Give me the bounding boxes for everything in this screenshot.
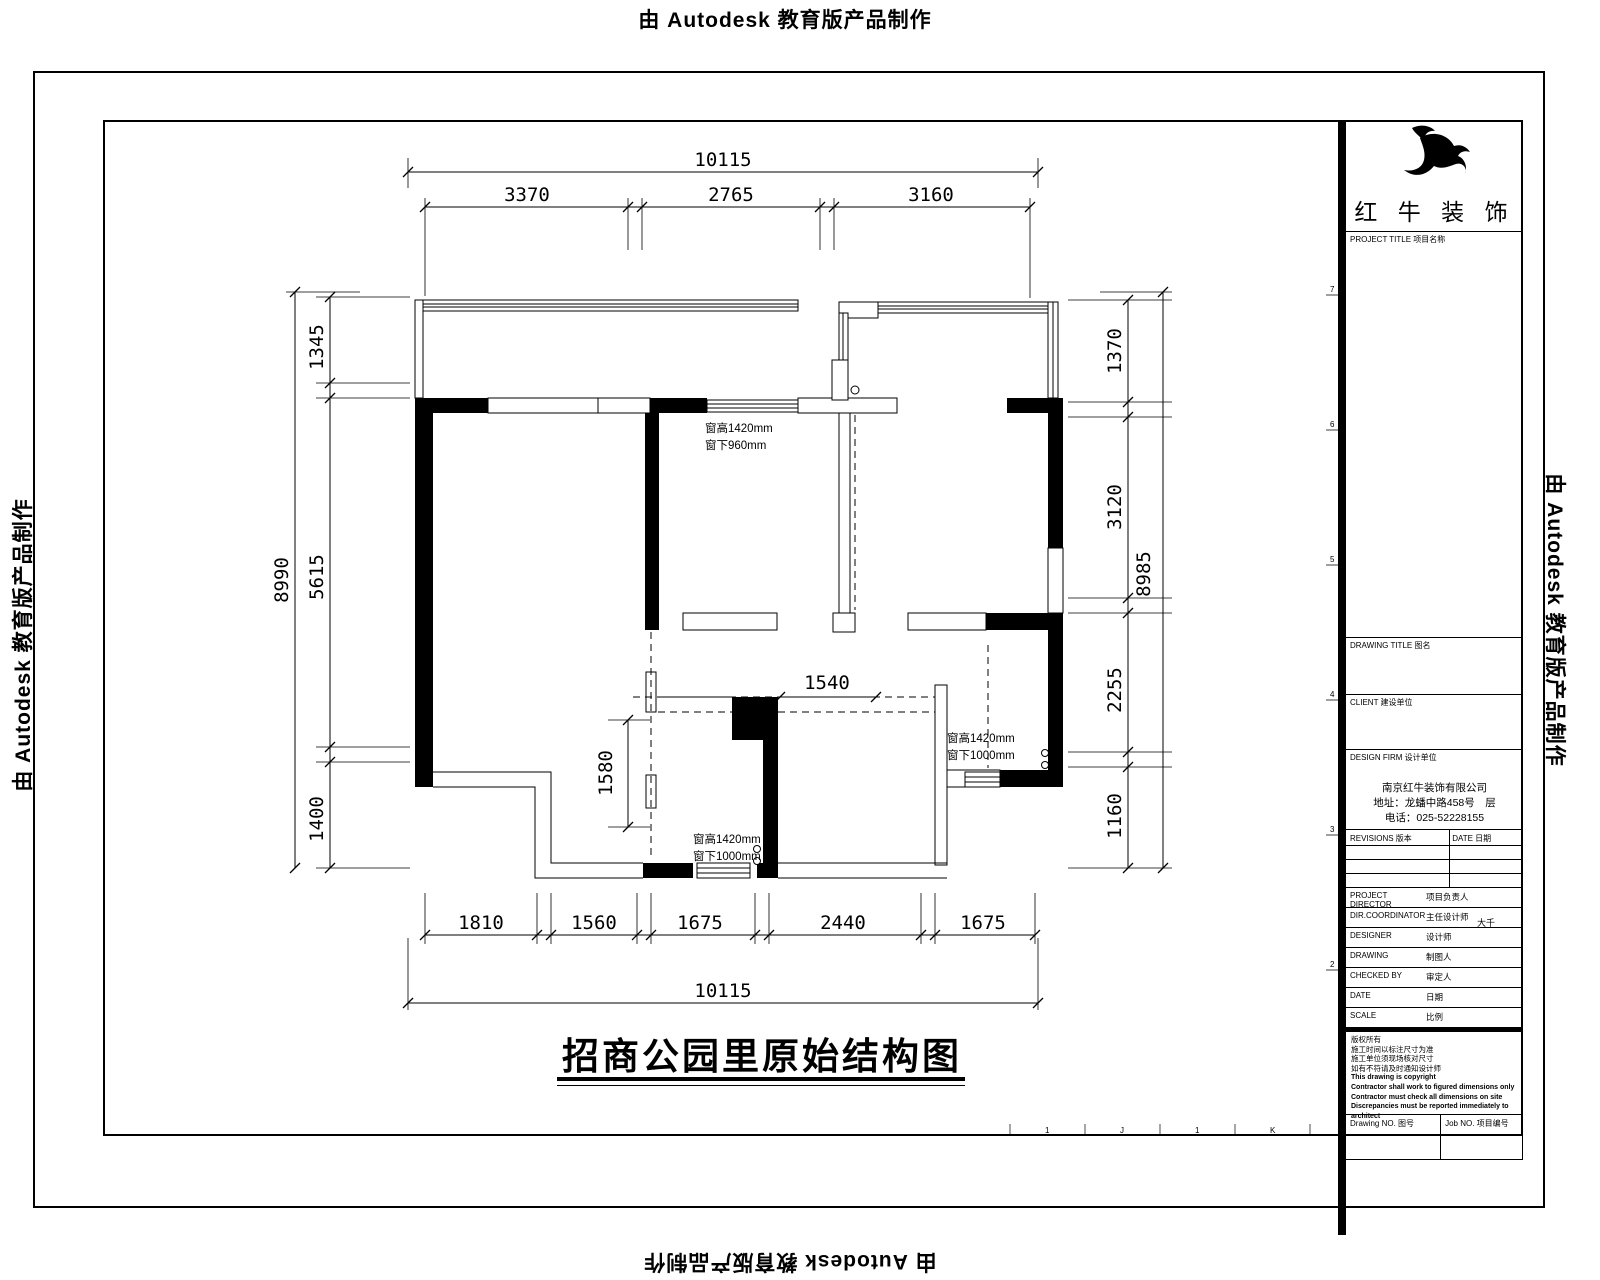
project-title-box: PROJECT TITLE 项目名称 xyxy=(1346,232,1523,638)
svg-text:1: 1 xyxy=(1045,1126,1050,1135)
dim-top-seg-2: 2765 xyxy=(708,184,754,206)
window-note-right-2: 窗下1000mm xyxy=(947,748,1015,762)
window-note-right-1: 窗高1420mm xyxy=(947,731,1015,745)
dim-right-seg-2: 3120 xyxy=(1104,484,1126,530)
title-underline-thick xyxy=(557,1077,965,1081)
window-annotations: 窗高1420mm 窗下960mm 窗高1420mm 窗下1000mm 窗高142… xyxy=(693,421,1015,863)
revision-row xyxy=(1346,874,1523,888)
revisions-header: REVISIONS 版本 DATE 日期 xyxy=(1346,830,1523,846)
dim-right-overall: 8985 xyxy=(1133,551,1155,597)
dim-top-seg-3: 3160 xyxy=(908,184,954,206)
dim-left-overall: 8990 xyxy=(271,557,293,603)
design-firm-box: DESIGN FIRM 设计单位 南京红牛装饰有限公司 地址：龙蟠中路458号 … xyxy=(1346,750,1523,830)
row-dir-coordinator: DIR.COORDINATOR 主任设计师 大千 xyxy=(1346,908,1523,928)
drawing-title-box: DRAWING TITLE 图名 xyxy=(1346,638,1523,695)
client-box: CLIENT 建设单位 xyxy=(1346,695,1523,750)
dim-right-seg-3: 2255 xyxy=(1104,667,1126,713)
window-note-top-2: 窗下960mm xyxy=(705,438,766,452)
company-phone: 电话：025-52228155 xyxy=(1350,811,1519,826)
dim-bottom-seg-2: 1560 xyxy=(571,912,617,934)
svg-text:6: 6 xyxy=(1330,420,1335,429)
row-drawing: DRAWING 制图人 xyxy=(1346,948,1523,968)
svg-text:K: K xyxy=(1270,1126,1276,1135)
column-divider xyxy=(1440,1115,1441,1159)
svg-text:2: 2 xyxy=(1330,960,1335,969)
dim-bottom-seg-4: 2440 xyxy=(820,912,866,934)
svg-text:4: 4 xyxy=(1330,690,1335,699)
dim-interior-width: 1540 xyxy=(804,672,850,694)
dim-top-overall: 10115 xyxy=(694,149,751,171)
dim-top-seg-1: 3370 xyxy=(504,184,550,206)
row-designer: DESIGNER 设计师 xyxy=(1346,928,1523,948)
cad-sheet: { "watermark": { "text": "由 Autodesk 教育版… xyxy=(0,0,1600,1280)
row-scale: SCALE 比例 xyxy=(1346,1008,1523,1028)
window-note-bottom-1: 窗高1420mm xyxy=(693,832,761,846)
dim-left-seg-2: 5615 xyxy=(306,554,328,600)
title-underline-thin xyxy=(557,1085,965,1086)
dim-bottom-seg-3: 1675 xyxy=(677,912,723,934)
title-block: 红 牛 装 饰 PROJECT TITLE 项目名称 DRAWING TITLE… xyxy=(1346,120,1523,1160)
dim-left-seg-3: 1400 xyxy=(306,796,328,842)
job-no-label: Job NO. 项目编号 xyxy=(1445,1118,1509,1129)
svg-text:3: 3 xyxy=(1330,825,1335,834)
svg-text:J: J xyxy=(1120,1126,1124,1135)
drawing-title: 招商公园里原始结构图 xyxy=(557,1026,967,1080)
client-label: CLIENT 建设单位 xyxy=(1350,698,1413,707)
row-checked-by: CHECKED BY 审定人 xyxy=(1346,968,1523,988)
red-bull-logo-icon xyxy=(1390,124,1480,186)
drawing-title-label: DRAWING TITLE 图名 xyxy=(1350,641,1430,650)
drawing-no-label: Drawing NO. 图号 xyxy=(1350,1118,1414,1129)
brand-name: 红 牛 装 饰 xyxy=(1346,193,1523,227)
column-divider xyxy=(1449,830,1450,845)
dim-bottom-seg-1: 1810 xyxy=(458,912,504,934)
revision-date-label: DATE 日期 xyxy=(1452,833,1491,844)
row-date: DATE 日期 xyxy=(1346,988,1523,1008)
svg-text:1: 1 xyxy=(1195,1126,1200,1135)
project-title-label: PROJECT TITLE 项目名称 xyxy=(1350,235,1445,244)
walls xyxy=(415,398,1063,878)
dim-bottom-overall: 10115 xyxy=(694,980,751,1002)
thin-walls xyxy=(433,302,1063,878)
company-address: 地址：龙蟠中路458号 层 xyxy=(1350,796,1519,811)
svg-text:7: 7 xyxy=(1330,285,1335,294)
design-firm-label: DESIGN FIRM 设计单位 xyxy=(1350,753,1437,762)
company-name: 南京红牛装饰有限公司 xyxy=(1350,781,1519,796)
logo-box: 红 牛 装 饰 xyxy=(1346,120,1523,232)
window-note-top-1: 窗高1420mm xyxy=(705,421,773,435)
dim-right-seg-4: 1160 xyxy=(1104,793,1126,839)
dim-right-seg-1: 1370 xyxy=(1104,328,1126,374)
windows xyxy=(415,300,1058,878)
revision-row xyxy=(1346,846,1523,860)
dim-left-seg-1: 1345 xyxy=(306,324,328,370)
revision-row xyxy=(1346,860,1523,874)
row-project-director: PROJECT DIRECTOR 项目负责人 xyxy=(1346,888,1523,908)
window-note-bottom-2: 窗下1000mm xyxy=(693,849,761,863)
dim-bottom-seg-5: 1675 xyxy=(960,912,1006,934)
revisions-label: REVISIONS 版本 xyxy=(1350,833,1412,844)
svg-text:5: 5 xyxy=(1330,555,1335,564)
drawing-number-box: Drawing NO. 图号 Job NO. 项目编号 xyxy=(1346,1115,1523,1160)
dim-interior-height: 1580 xyxy=(595,750,617,796)
copyright-box: 版权所有 施工时间以标注尺寸为准 施工单位须现场核对尺寸 如有不符请及时通知设计… xyxy=(1346,1032,1523,1115)
